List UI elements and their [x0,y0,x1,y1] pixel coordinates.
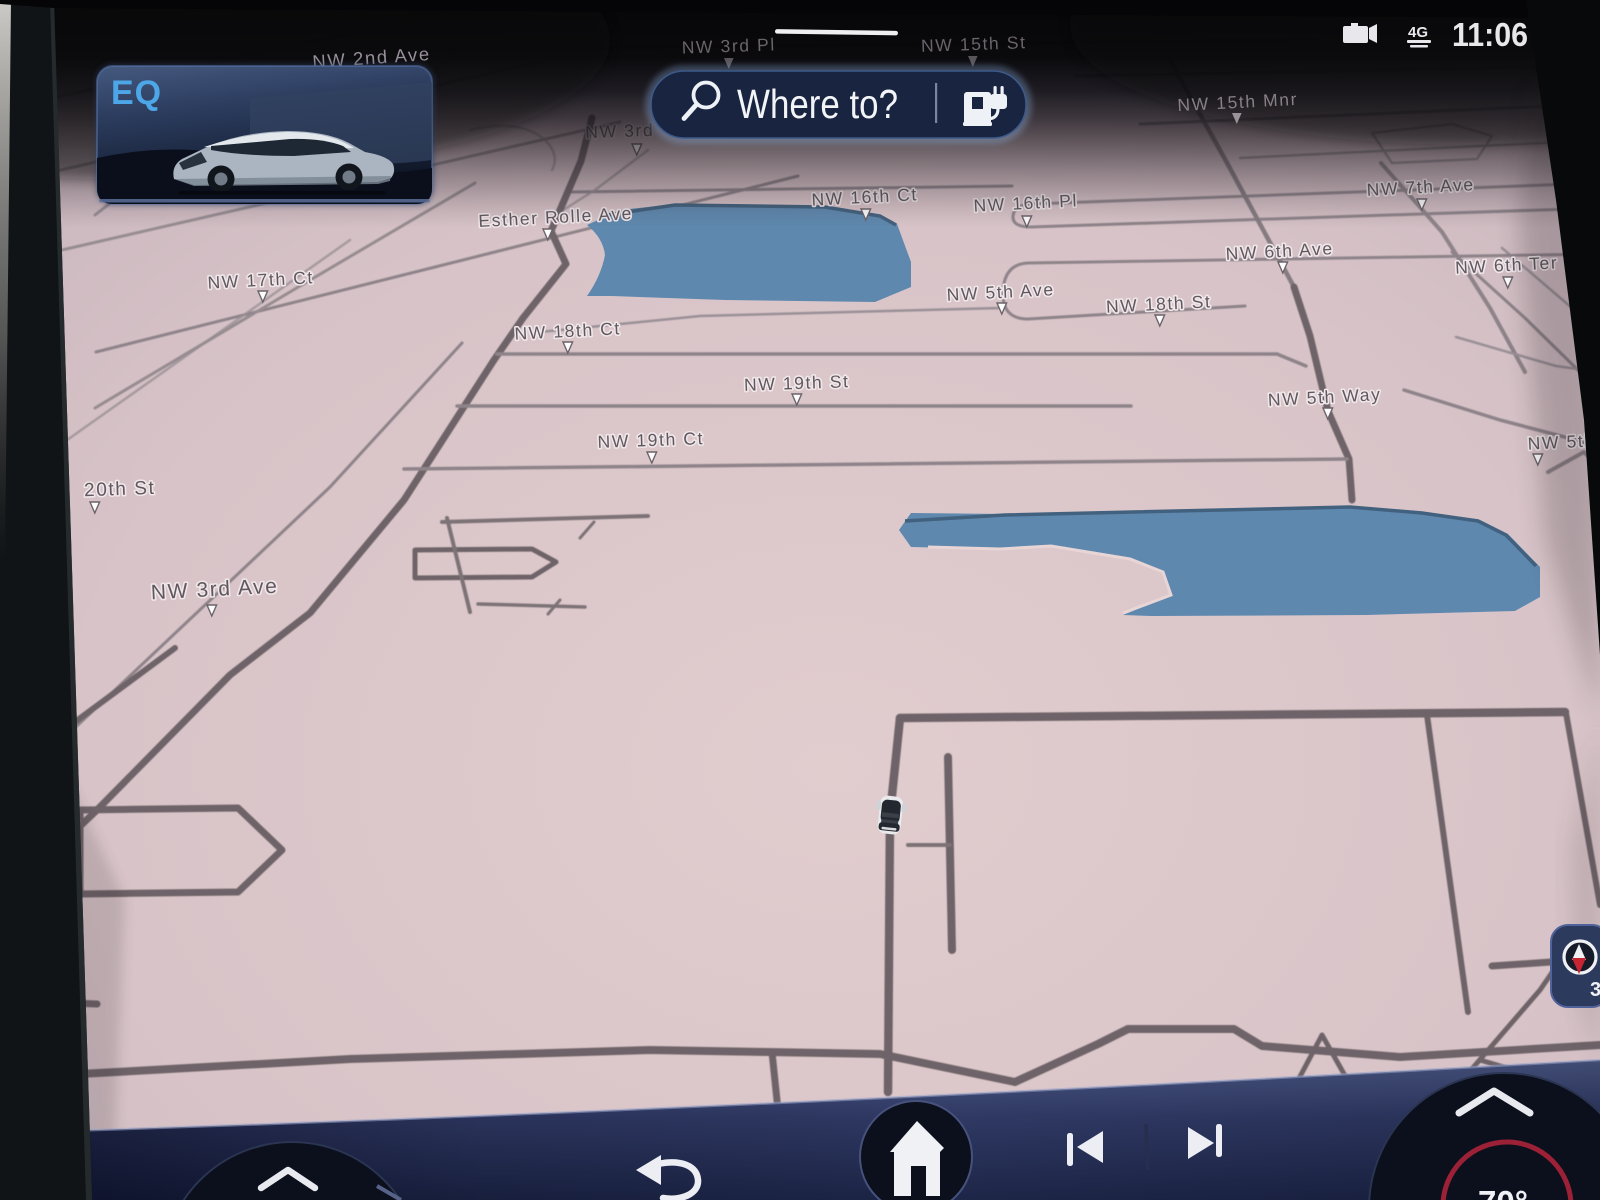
svg-text:20th St: 20th St [84,478,156,501]
svg-text:11:06: 11:06 [1452,16,1528,53]
svg-text:3: 3 [1590,979,1600,1001]
svg-text:4G: 4G [1408,24,1428,41]
svg-text:NW 19th Ct: NW 19th Ct [597,428,704,452]
svg-text:70°: 70° [1478,1184,1528,1200]
svg-text:Where to?: Where to? [737,81,898,127]
svg-text:NW 15th St: NW 15th St [921,32,1027,56]
svg-text:EQ: EQ [111,74,162,112]
svg-text:NW 3rd Pl: NW 3rd Pl [681,34,776,57]
svg-text:NW 19th St: NW 19th St [744,371,850,395]
